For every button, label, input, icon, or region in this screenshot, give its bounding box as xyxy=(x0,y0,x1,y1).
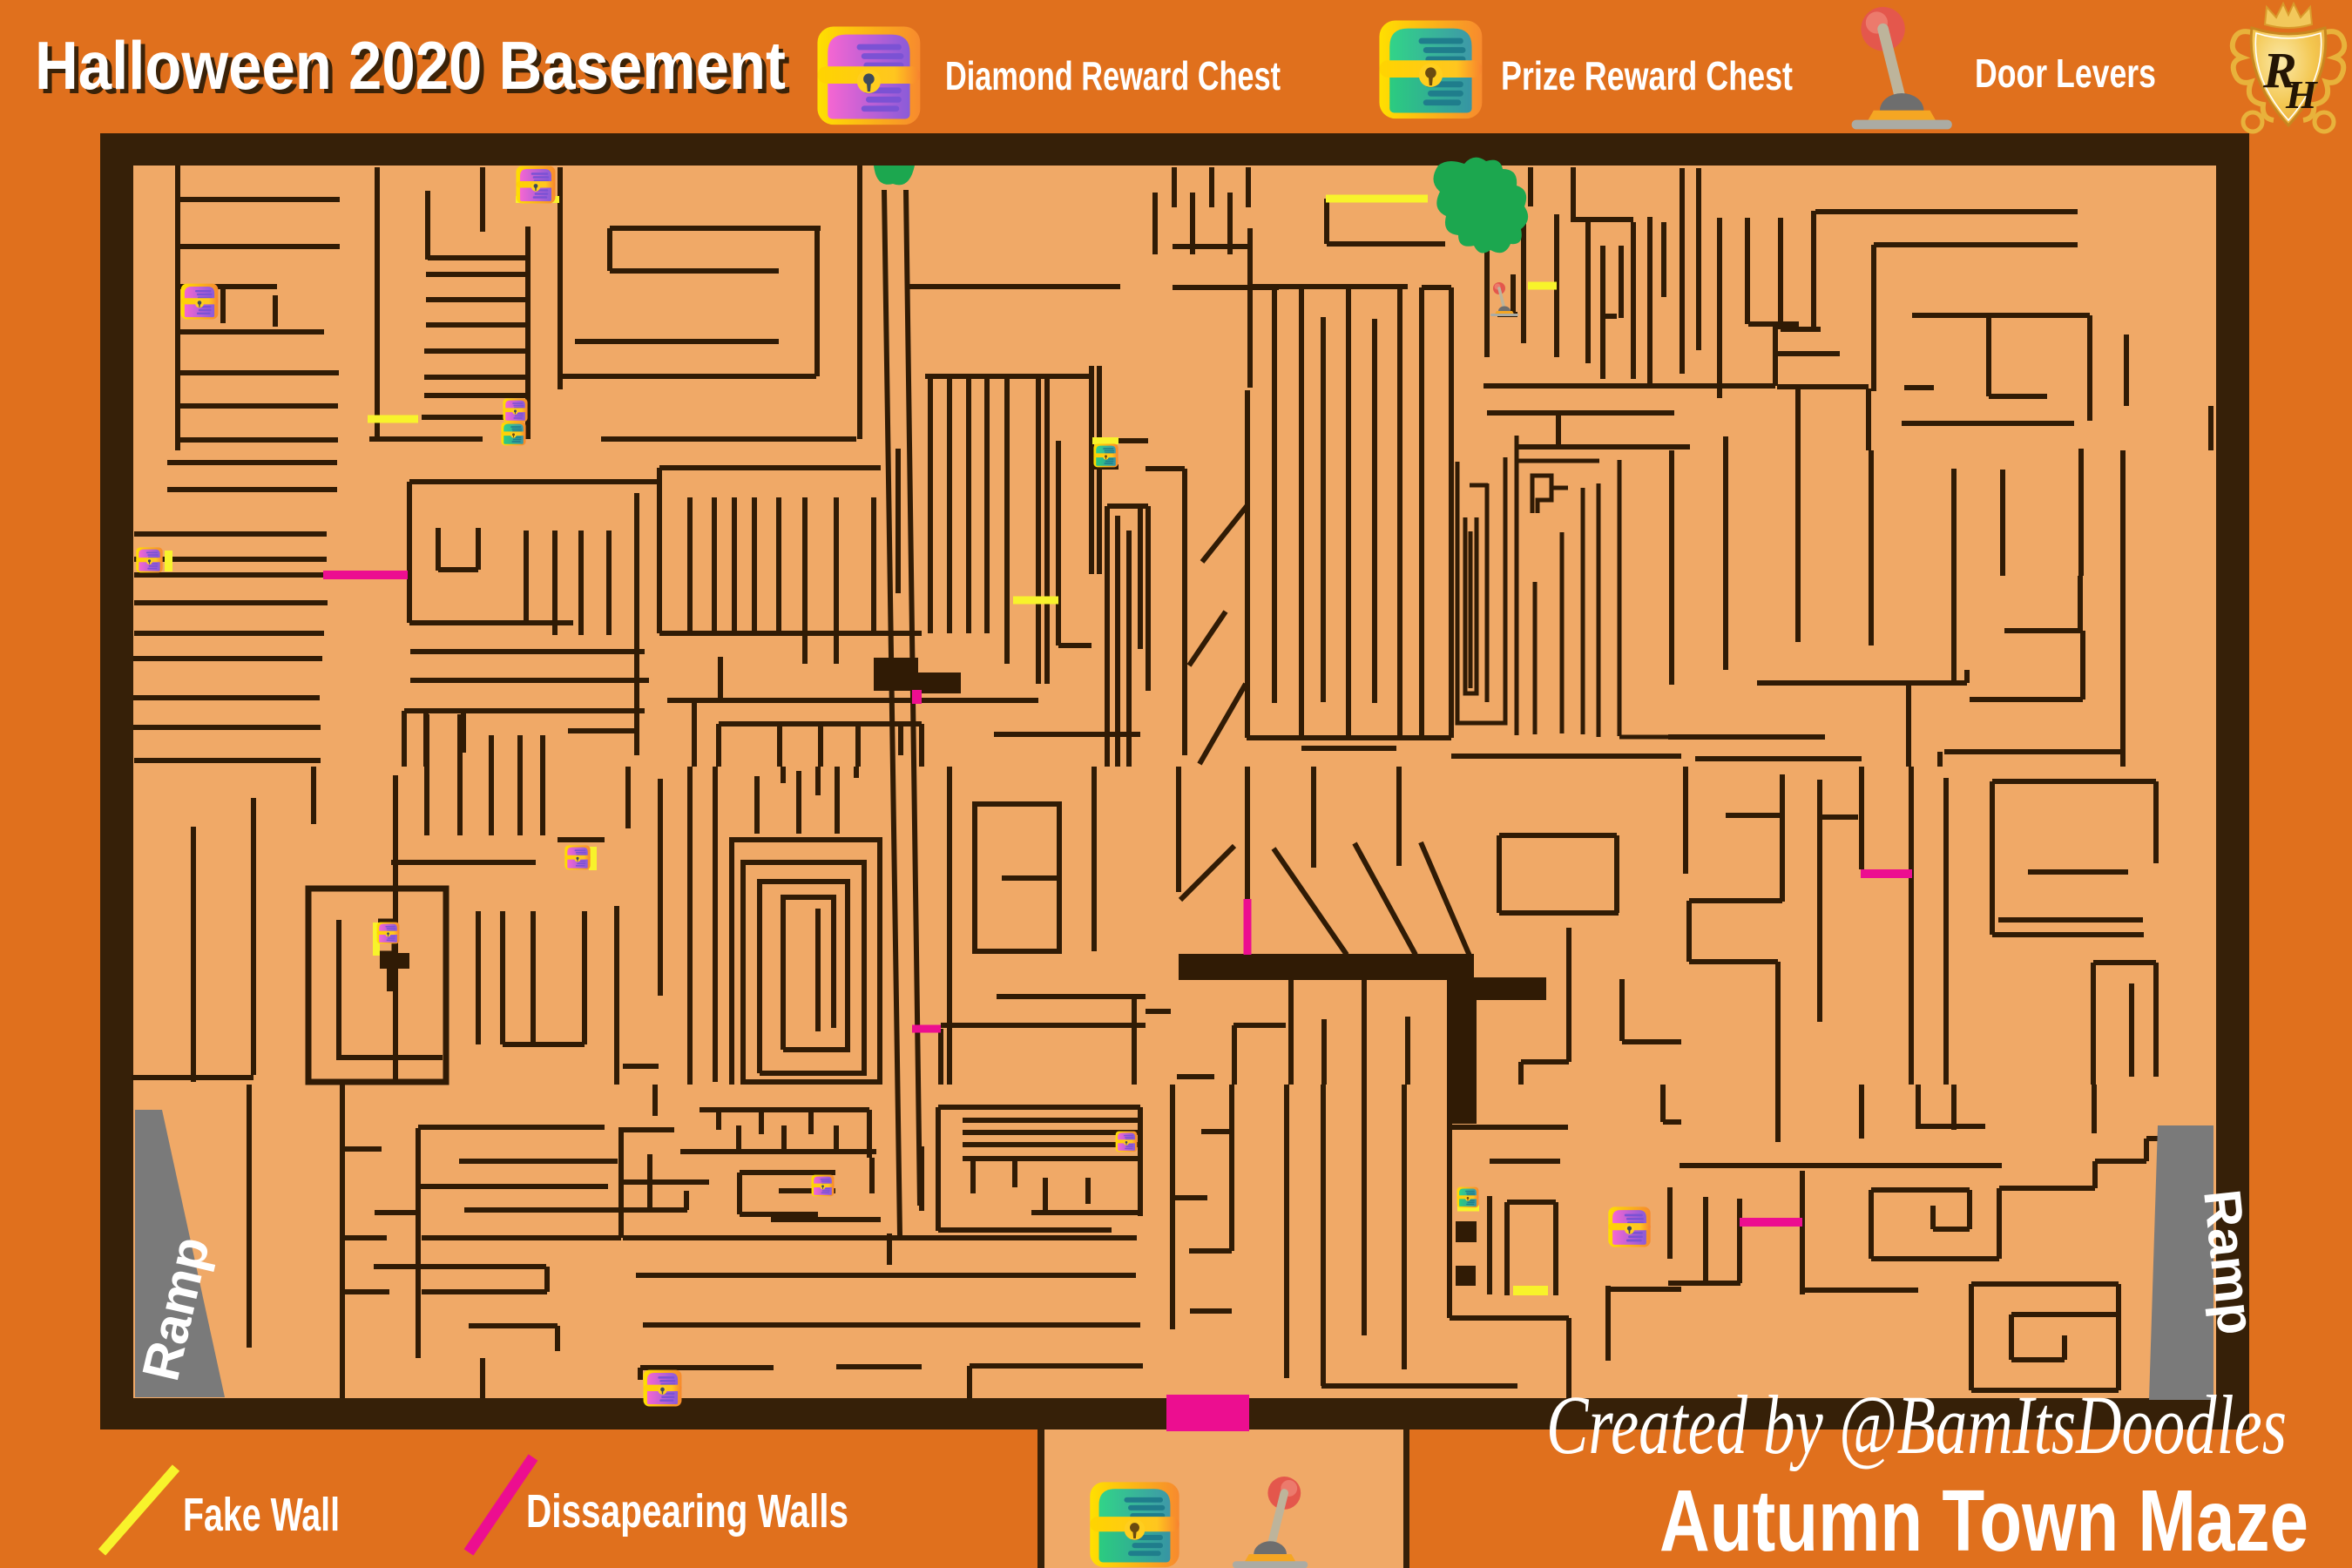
svg-text:H: H xyxy=(2285,72,2318,117)
svg-text:Prize Reward Chest: Prize Reward Chest xyxy=(1501,53,1793,98)
svg-text:Halloween 2020 Basement: Halloween 2020 Basement xyxy=(35,27,786,104)
svg-text:Autumn Town Maze: Autumn Town Maze xyxy=(1659,1472,2308,1568)
svg-text:Door Levers: Door Levers xyxy=(1975,51,2156,96)
svg-text:Diamond Reward Chest: Diamond Reward Chest xyxy=(945,53,1281,98)
svg-text:Created by @BamItsDoodles: Created by @BamItsDoodles xyxy=(1546,1378,2287,1471)
svg-text:Fake Wall: Fake Wall xyxy=(183,1489,340,1541)
svg-text:Dissapearing Walls: Dissapearing Walls xyxy=(526,1485,848,1538)
